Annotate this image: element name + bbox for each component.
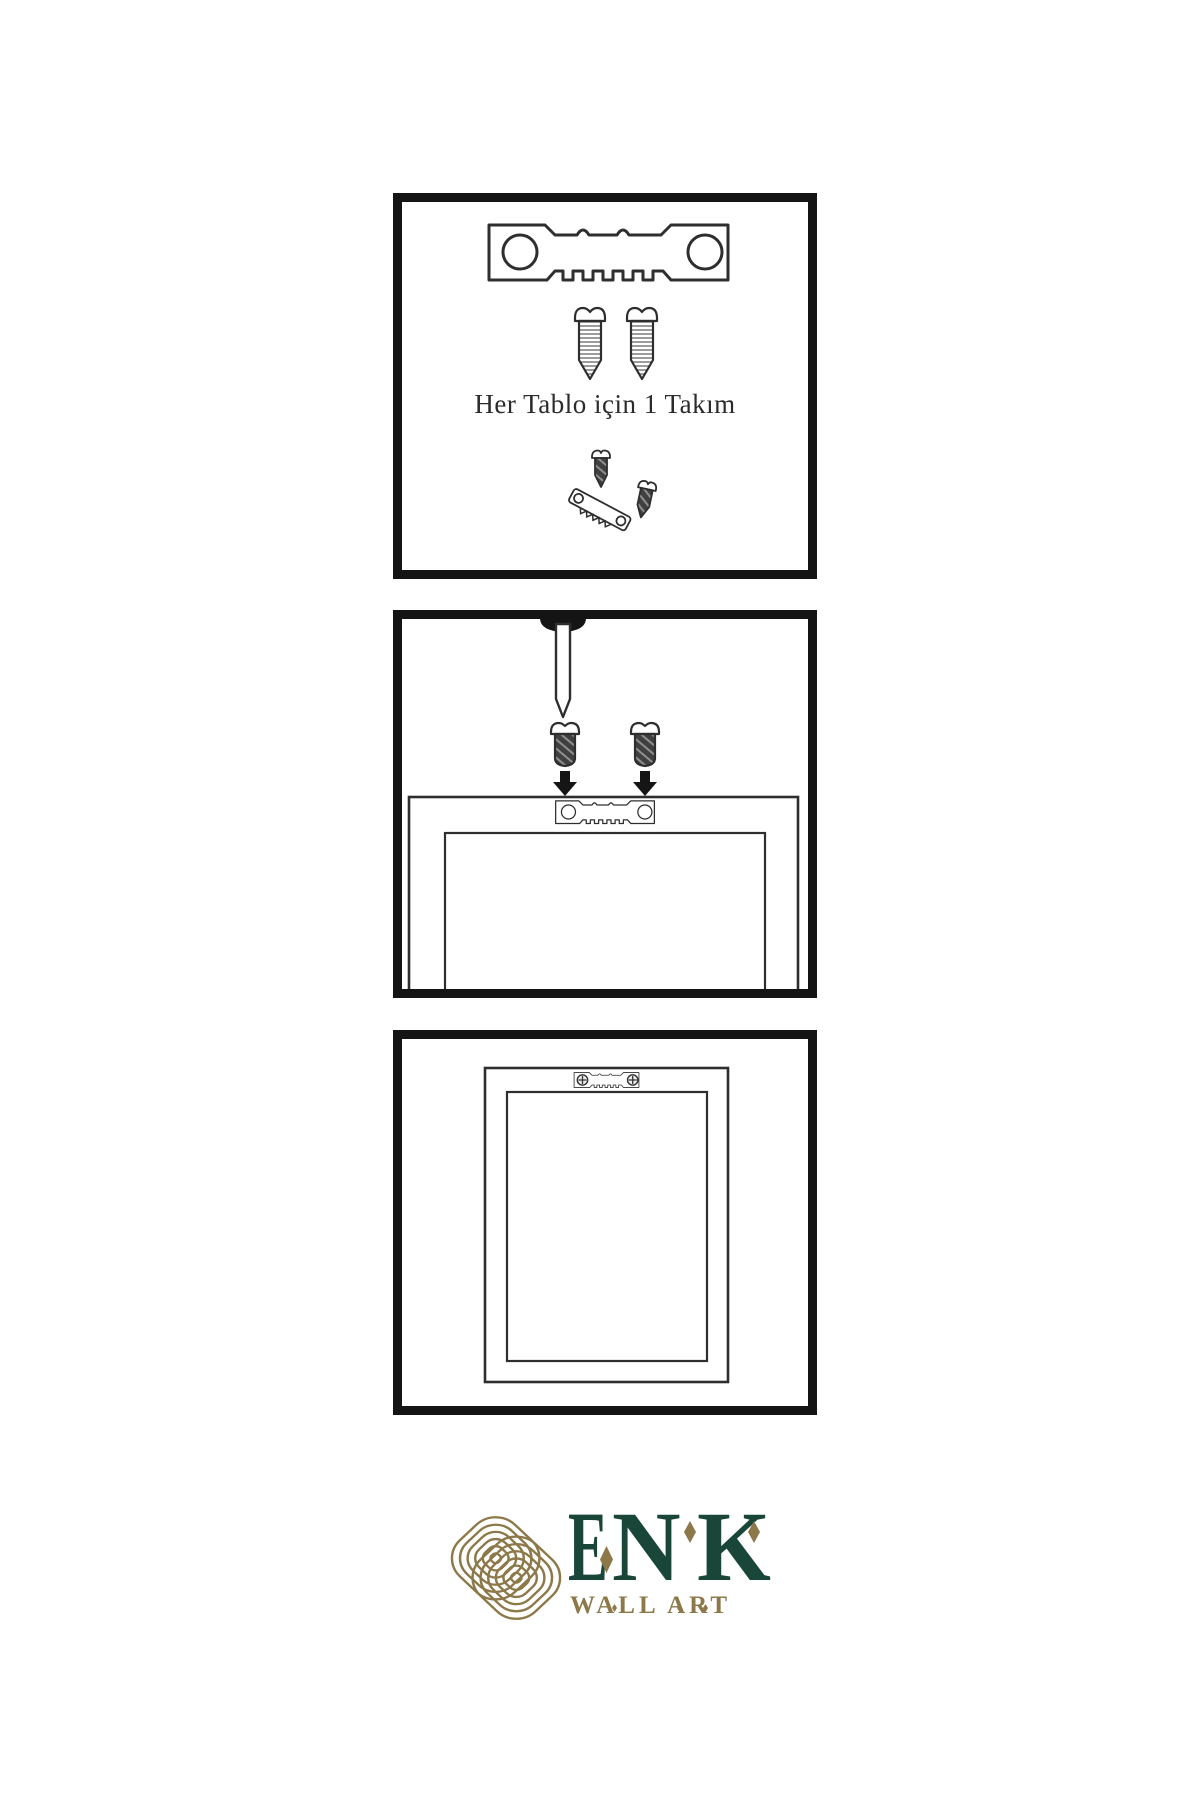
mini-sawtooth-hanger-icon — [566, 488, 632, 536]
screw-into-hanger-demo — [566, 451, 658, 536]
screw-icon — [632, 480, 657, 519]
diamond-icon — [684, 1521, 696, 1543]
brand-knot-logo-icon — [434, 1498, 578, 1638]
step-3-panel — [393, 1030, 817, 1415]
step-1-panel — [393, 193, 817, 579]
framed-picture-back-icon — [485, 1068, 728, 1382]
brand-tagline: WALL ART — [570, 1592, 731, 1620]
brand-letter-e: E — [568, 1497, 608, 1597]
phillips-screw-head-icon — [628, 1075, 638, 1085]
kit-caption: Her Tablo için 1 Takım — [393, 389, 817, 420]
step-3-drawing — [402, 1039, 808, 1406]
sawtooth-hanger-icon — [489, 225, 728, 280]
step-2-drawing — [402, 619, 808, 989]
brand-letter-k: K — [697, 1497, 771, 1597]
frame-back-icon — [409, 797, 798, 989]
step-2-panel — [393, 610, 817, 998]
down-arrow-icon — [553, 771, 577, 796]
step-1-drawing — [402, 202, 808, 570]
sawtooth-hanger-icon — [556, 801, 655, 824]
instruction-sheet: Her Tablo için 1 Takım — [0, 0, 1200, 1800]
phillips-screw-head-icon — [577, 1075, 587, 1085]
screw-icon — [631, 723, 659, 766]
screw-icon — [551, 723, 579, 766]
brand-letter-n: N — [612, 1497, 681, 1597]
nail-icon — [540, 619, 586, 717]
down-arrow-icon — [633, 771, 657, 796]
screw-icon — [592, 451, 610, 488]
screw-icon — [575, 308, 605, 379]
screw-icon — [627, 308, 657, 379]
